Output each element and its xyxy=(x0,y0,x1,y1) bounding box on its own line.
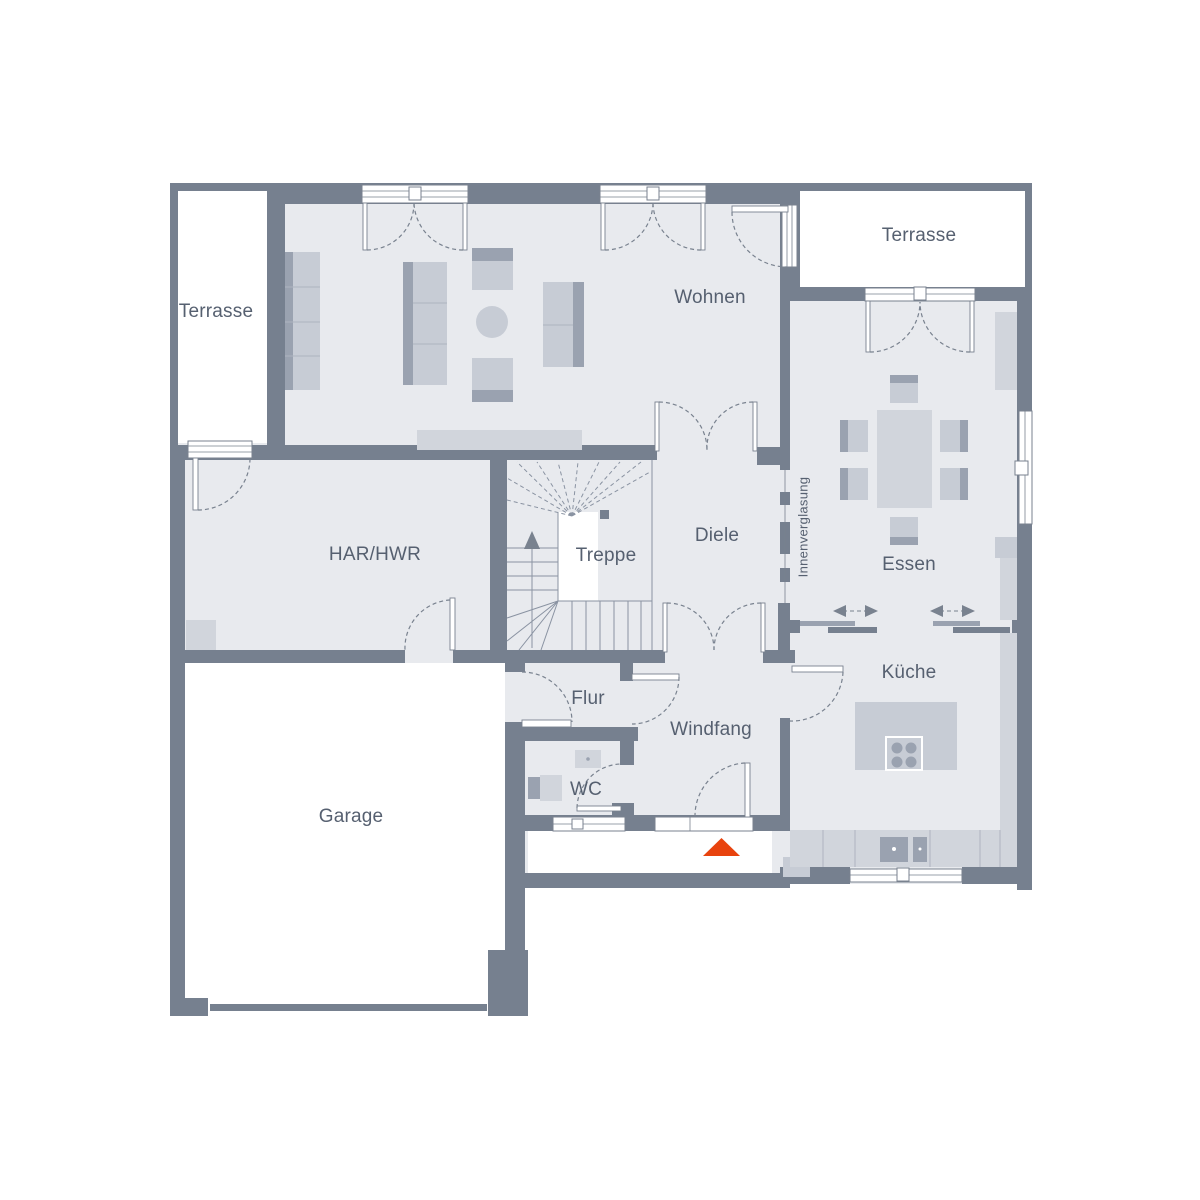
wall-left-foot xyxy=(170,998,208,1016)
wall-wohnen-essen xyxy=(780,301,790,470)
french-door-wohnen-right xyxy=(600,185,706,203)
label-windfang: Windfang xyxy=(670,719,752,741)
wall-right-outer-top xyxy=(1025,188,1032,301)
wall-flur-stub xyxy=(620,663,633,681)
wall-garage-right-block xyxy=(488,950,528,1016)
window-wc xyxy=(553,817,625,831)
wall-windfang-kueche xyxy=(780,718,790,831)
sliding-stub-right xyxy=(1012,620,1032,633)
label-innenverglasung: Innenverglasung xyxy=(796,477,811,578)
kitchen-sink xyxy=(880,837,927,862)
armchair-bottom-back xyxy=(472,390,513,402)
window-terrasse-right xyxy=(782,205,797,267)
garage-door-line xyxy=(210,1004,487,1011)
wall-treppe-flur-band xyxy=(505,650,665,663)
label-treppe: Treppe xyxy=(576,545,637,567)
wall-kueche-bottom-right xyxy=(962,867,1032,884)
wall-top-right-thin xyxy=(795,183,1032,191)
kueche-side-counter xyxy=(1000,633,1017,830)
wall-left-outer xyxy=(170,447,185,1016)
essen-cabinet-top xyxy=(995,312,1017,390)
armchair-top xyxy=(472,261,513,290)
label-flur: Flur xyxy=(571,688,605,710)
armchair-top-back xyxy=(472,248,513,261)
wall-garage-right xyxy=(505,722,525,950)
wall-terrasse-left-right xyxy=(267,183,285,447)
wall-wc-right-upper xyxy=(620,741,634,765)
coffee-table xyxy=(476,306,508,338)
wall-garage-right-upper xyxy=(505,663,525,672)
dining-table xyxy=(877,410,932,508)
wall-har-bottom-left xyxy=(170,650,405,663)
below-kitchen-exterior xyxy=(790,884,1032,1016)
label-terrasse-left: Terrasse xyxy=(179,301,253,323)
french-door-essen-terrasse xyxy=(865,287,975,301)
wall-wc-top xyxy=(518,727,638,741)
label-garage: Garage xyxy=(319,806,384,828)
lowboard xyxy=(417,430,582,450)
sliding-stub-left xyxy=(780,620,800,633)
wall-har-right xyxy=(490,447,507,650)
stair-newel-post xyxy=(600,510,609,519)
wall-band-right xyxy=(763,650,795,663)
label-kueche: Küche xyxy=(882,662,937,684)
toilet xyxy=(528,775,562,801)
wall-left-outer-thin xyxy=(170,183,178,447)
window-kueche xyxy=(850,868,962,882)
window-har-terrasse xyxy=(188,441,252,458)
label-diele: Diele xyxy=(695,525,739,547)
armchair-bottom xyxy=(472,358,513,390)
front-door-frame xyxy=(655,817,753,831)
sofa-left-back xyxy=(403,262,413,385)
below-porch-exterior xyxy=(505,888,790,1016)
har-appliance xyxy=(186,620,216,650)
label-wc: WC xyxy=(570,779,602,801)
label-terrasse-right: Terrasse xyxy=(882,225,956,247)
french-door-wohnen-left xyxy=(362,185,468,203)
sofa-right-back xyxy=(573,282,584,367)
garage-area xyxy=(185,663,505,1016)
wall-right-outer xyxy=(1017,301,1032,890)
floor-plan-canvas: Terrasse Wohnen Terrasse Essen Innenverg… xyxy=(0,0,1200,1200)
floor-plan-drawing xyxy=(0,0,1200,1200)
wall-har-bottom-right xyxy=(453,650,507,663)
wall-top-main xyxy=(267,183,800,204)
wall-porch-bottom xyxy=(505,873,790,888)
sofa-left xyxy=(413,262,447,385)
label-essen: Essen xyxy=(882,554,936,576)
label-wohnen: Wohnen xyxy=(674,287,746,309)
cooktop xyxy=(886,737,922,770)
label-har-hwr: HAR/HWR xyxy=(329,544,421,566)
